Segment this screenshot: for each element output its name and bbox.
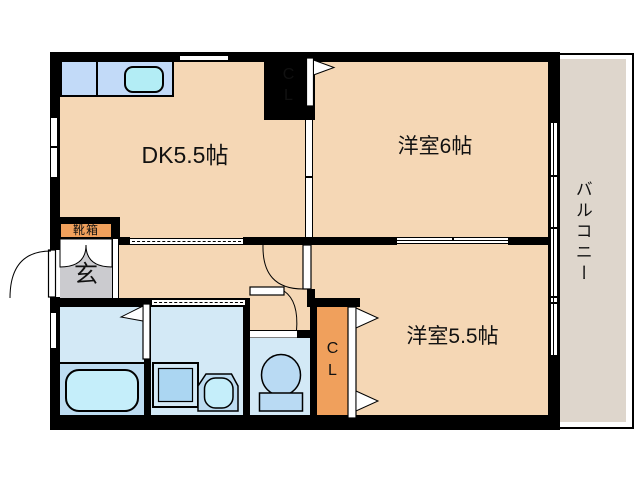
closet-bottom-label: C L	[317, 338, 348, 382]
closet-top-door-swing	[314, 60, 335, 75]
closet-bottom-door-leaf	[348, 307, 356, 418]
closet-bottom-door-swing-bottom	[356, 391, 378, 411]
fixtures-and-doors-layer	[0, 0, 638, 480]
wash-basin-bowl	[205, 378, 234, 408]
balcony-label: バルコニー	[572, 180, 591, 285]
room-label-dk: DK5.5帖	[120, 143, 250, 168]
washing-machine	[159, 369, 193, 402]
closet-top-door-leaf	[307, 58, 314, 106]
toilet-door-opening	[250, 331, 297, 338]
front-door-leaf	[49, 250, 56, 297]
closet-bottom-door-swing-top	[356, 308, 378, 328]
shoe-box-label: 靴箱	[60, 224, 112, 237]
room-label-western6: 洋室6帖	[375, 135, 495, 158]
western55-door-leaf	[303, 245, 311, 289]
floor-plan: DK5.5帖 洋室6帖 洋室5.5帖 C L C L 玄 靴箱 バルコニー	[0, 0, 638, 480]
kitchen-sink	[125, 67, 163, 92]
toilet-tank	[260, 393, 303, 411]
toilet-door-swing	[284, 291, 297, 331]
closet-top-label: C L	[270, 64, 307, 106]
entrance-label: 玄	[60, 262, 112, 288]
front-door-swing	[10, 251, 51, 298]
bathroom-door-leaf	[143, 304, 150, 359]
bathroom-door-swing	[121, 306, 143, 321]
toilet-bowl	[262, 355, 301, 396]
toilet-door-leaf	[250, 287, 284, 295]
bathtub	[66, 370, 138, 411]
western55-door-swing	[263, 245, 303, 289]
room-label-western55: 洋室5.5帖	[385, 325, 520, 348]
